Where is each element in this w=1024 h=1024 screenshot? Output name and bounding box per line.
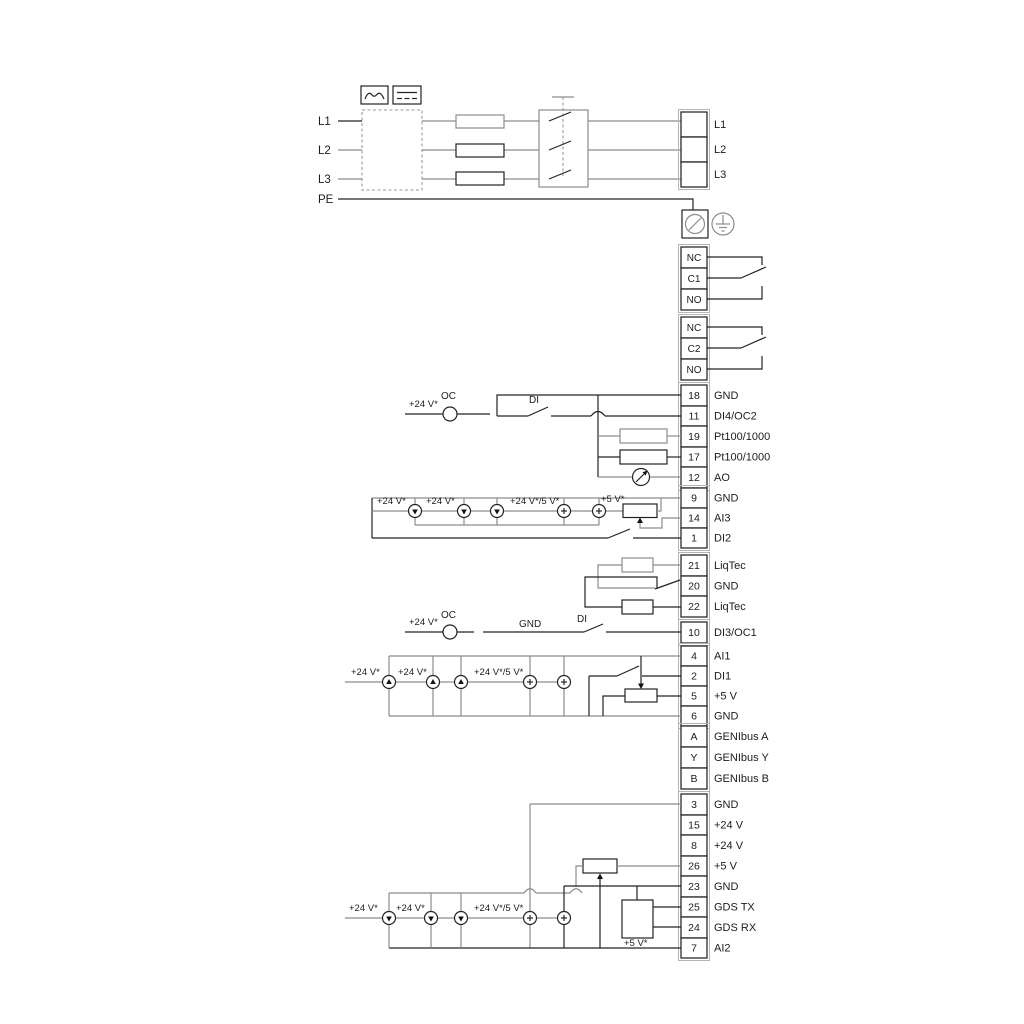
terminal-number: 19 [688,431,700,443]
terminal-label: GND [714,799,739,811]
contactor-icon [539,97,588,187]
current-source-icon [409,498,422,525]
mains-label-pe: PE [318,194,334,206]
power-wiring [338,121,693,210]
terminal-label: DI1 [714,671,731,683]
terminal-number: 1 [691,533,697,545]
relay2-contact-icon [707,327,766,369]
converter-dashed-box [362,110,422,190]
annotation-24v-5v: +24 V*/5 V* [474,903,524,914]
annotation-24v: +24 V* [349,903,378,914]
terminal-label: +5 V [714,691,738,703]
terminal-label: Pt100/1000 [714,431,770,443]
terminal-number: Y [690,752,697,764]
voltage-source-icon [524,656,537,716]
terminal-label: GND [714,711,739,723]
terminal-label: DI2 [714,533,731,545]
groupA-top-rail [497,395,681,416]
mains-label-l1: L1 [318,116,331,128]
terminal-block-liqtec: 21 20 22 LiqTec GND LiqTec [679,553,747,620]
annotation-24v-5v: +24 V*/5 V* [474,667,524,678]
voltage-source-icon [524,912,537,925]
mains-out-label-l1: L1 [714,119,726,131]
terminal-label: GENIbus A [714,731,769,743]
terminal-label: +24 V [714,840,744,852]
current-source-icon [383,893,396,948]
annotation-24v: +24 V* [398,667,427,678]
wiring-diagram-page: L1 L2 L3 PE [0,0,1024,1024]
annotation-24v: +24 V* [409,399,438,410]
wiring-diagram: L1 L2 L3 PE [0,0,1024,1024]
mains-label-l3: L3 [318,174,331,186]
converter-module [361,86,422,190]
terminal-label: GDS TX [714,902,755,914]
relay-block-1: NC C1 NO [679,245,767,313]
terminal-label: +24 V [714,820,744,832]
terminal-number: 22 [688,601,700,613]
relay1-contact-icon [707,257,766,299]
mains-input-labels: L1 L2 L3 PE [318,116,334,206]
voltage-source-icon [558,912,571,925]
terminal-number: 5 [691,691,697,703]
terminal-number: 26 [688,861,700,873]
terminal-label: GENIbus Y [714,752,769,764]
terminal-number: 11 [689,411,700,423]
liqtec-sensor-circuit [585,558,681,614]
earth-icon [712,213,734,235]
potentiometer-icon [603,656,681,716]
terminal-label: AI3 [714,513,731,525]
terminal-number: A [690,731,697,743]
annotation-24v: +24 V* [377,496,406,507]
terminal-number: 24 [688,922,700,934]
oc2-circuit: +24 V* OC DI [405,391,681,486]
terminal-number: 17 [688,452,700,464]
terminal-label: AI2 [714,943,731,955]
annotation-24v: +24 V* [409,617,438,628]
current-source-icon [427,656,440,716]
annotation-5v: +5 V* [624,938,648,949]
terminal-label: LiqTec [714,560,746,572]
resistor-icon-liqtec-2 [622,600,653,614]
annotation-di: DI [529,395,539,406]
terminal-number: 9 [691,493,697,505]
switch-icon [528,407,548,416]
current-source-icon [455,893,468,948]
mains-out-label-l2: L2 [714,144,726,156]
ai1-sensor-circuit: +24 V* +24 V* +24 V*/5 V* [345,656,681,716]
terminal-block-groupC: 4 2 5 6 AI1 DI1 +5 V GND [679,644,739,729]
mains-out-label-l3: L3 [714,169,726,181]
terminal-number: B [690,773,697,785]
annotation-24v: +24 V* [351,667,380,678]
terminal-number: 25 [688,902,700,914]
terminal-number: 10 [688,627,700,639]
terminal-number: 23 [688,881,700,893]
terminal-number: 21 [688,560,700,572]
fuse-icon-l2 [456,144,504,157]
mains-terminal-block: L1 L2 L3 [679,110,727,190]
current-source-icon [458,498,471,525]
resistor-icon-liqtec-1 [622,558,653,572]
terminal-label: Pt100/1000 [714,452,770,464]
terminal-number: 15 [688,820,700,832]
terminal-block-di3: 10 DI3/OC1 [679,620,757,646]
terminal-number: 7 [691,943,697,955]
annotation-24v: +24 V* [426,496,455,507]
annotation-5v: +5 V* [601,494,625,505]
terminal-block-genibus: A Y B GENIbus A GENIbus Y GENIbus B [679,724,770,792]
switch-icon [617,666,639,676]
fuse-icon-l3 [456,172,504,185]
pe-wire [338,199,693,210]
annotation-24v: +24 V* [396,903,425,914]
open-collector-icon [443,625,457,639]
ai2-gds-circuit: +5 V* +24 V* +24 V* +24 V*/5 V* [345,804,681,949]
relay1-nc: NC [687,253,701,264]
terminal-number: 3 [691,799,697,811]
terminal-block-groupD: 3 15 8 26 23 25 24 7 GND +24 V +24 V +5 … [679,792,757,961]
terminal-block-groupB: 9 14 1 GND AI3 DI2 [679,486,739,551]
terminal-label: LiqTec [714,601,746,613]
relay2-nc: NC [687,323,701,334]
voltage-source-icon [558,498,571,525]
voltage-source-icon [558,656,571,716]
annotation-gnd: GND [519,619,541,630]
fuse-icons [456,115,504,185]
resistor-icon-pt100-1 [620,429,667,443]
potentiometer-icon [623,498,681,528]
terminal-number: 4 [691,651,697,663]
ac-symbol-box [361,86,388,104]
terminal-number: 18 [688,390,700,402]
terminal-number: 6 [691,711,697,723]
switch-icon [584,624,603,632]
pe-terminal-icon [682,210,708,238]
gds-sensor-box [622,886,681,938]
relay1-no: NO [687,295,702,306]
current-source-icon [491,498,504,525]
terminal-number: 20 [688,581,700,593]
mains-label-l2: L2 [318,145,331,157]
terminal-label: AI1 [714,651,731,663]
ai3-sensor-circuit: +24 V* +24 V* +24 V*/5 V* +5 V* [372,494,681,538]
fuse-icon-l1 [456,115,504,128]
terminal-number: 12 [688,472,700,484]
relay2-c2: C2 [688,344,701,355]
terminal-label: GND [714,881,739,893]
terminal-number: 8 [691,840,697,852]
annotation-di: DI [577,614,587,625]
annotation-oc: OC [441,610,456,621]
analog-output-icon [633,469,650,486]
terminal-label: GND [714,493,739,505]
terminal-label: GND [714,390,739,402]
terminal-label: DI3/OC1 [714,627,757,639]
terminal-number: 14 [688,513,700,525]
dc-symbol-box [393,86,421,104]
terminal-label: GDS RX [714,922,757,934]
current-source-icon [455,656,468,716]
open-collector-icon [443,407,457,421]
switch-icon [608,529,630,538]
relay-block-2: NC C2 NO [679,315,767,383]
relay1-c1: C1 [688,274,701,285]
switch-icon [655,580,680,589]
current-source-icon [383,656,396,716]
relay2-no: NO [687,365,702,376]
annotation-oc: OC [441,391,456,402]
resistor-icon-pt100-2 [620,450,667,464]
terminal-label: GND [714,581,739,593]
terminal-number: 2 [691,671,697,683]
terminal-label: GENIbus B [714,773,769,785]
terminal-label: AO [714,472,730,484]
terminal-block-groupA: 18 11 19 17 12 GND DI4/OC2 Pt100/1000 Pt… [679,383,771,491]
annotation-24v-5v: +24 V*/5 V* [510,496,560,507]
wire-hop [570,889,582,893]
terminal-label: +5 V [714,861,738,873]
terminal-label: DI4/OC2 [714,411,757,423]
current-source-icon [425,893,438,948]
